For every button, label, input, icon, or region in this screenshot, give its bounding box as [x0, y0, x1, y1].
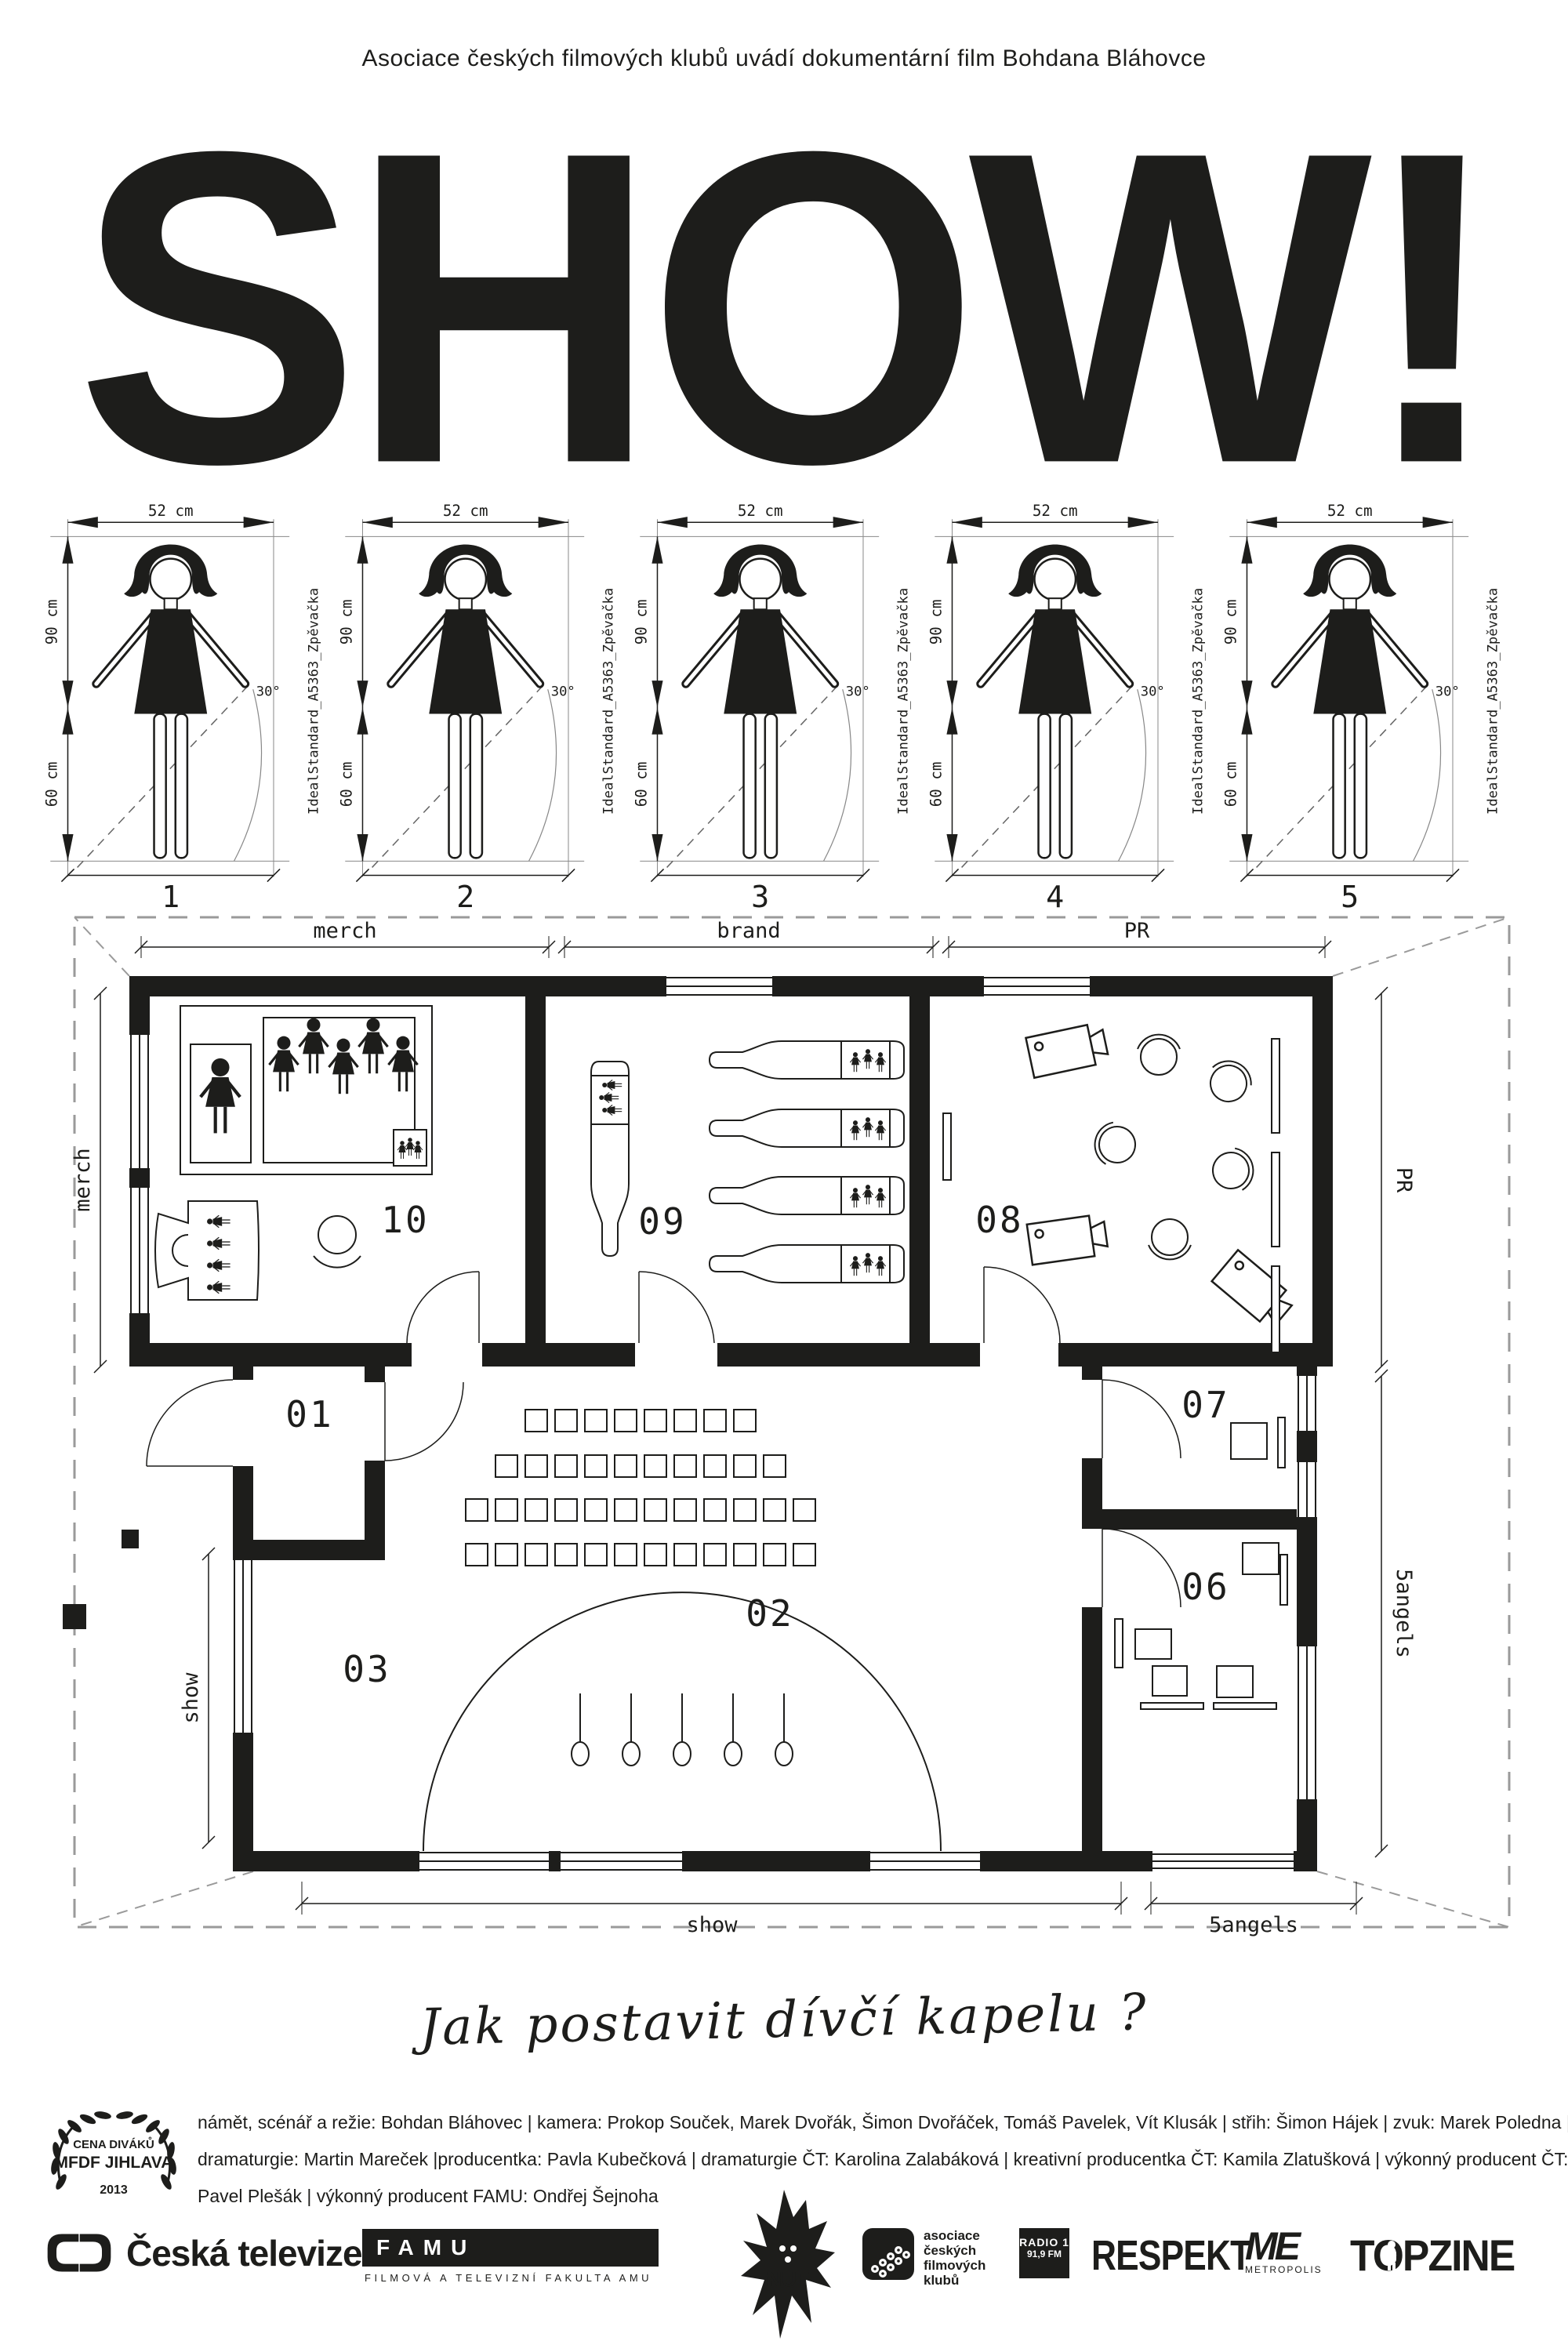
dim-top-merch: merch [313, 919, 376, 943]
svg-text:60 cm: 60 cm [930, 762, 945, 808]
outer-pillar [63, 1604, 86, 1629]
respekt-logo: RESPEKT [1091, 2231, 1250, 2280]
svg-text:IdealStandard_A5363_Zpěvačka: IdealStandard_A5363_Zpěvačka [601, 588, 617, 815]
svg-text:60 cm: 60 cm [340, 762, 355, 808]
floorplan: merch brand PR merch show PR 5angels sho… [55, 909, 1513, 1956]
topzine-person-icon [1381, 2239, 1403, 2276]
famu-logo: FAMU [362, 2229, 659, 2267]
credits-line-1: námět, scénář a režie: Bohdan Bláhovec |… [198, 2104, 1568, 2141]
dim-top-brand: brand [717, 919, 780, 943]
svg-text:30°: 30° [551, 684, 575, 699]
figure-diagram-row: 52 cm 90 cm 60 cm 30° IdealStandard_A536… [45, 503, 1523, 919]
ct-bracket-icon [43, 2230, 115, 2275]
svg-text:90 cm: 90 cm [930, 600, 945, 645]
width-dim-label: 52 cm [148, 503, 194, 520]
dim-bottom-show: show [686, 1913, 738, 1937]
outer-pillar [122, 1530, 139, 1548]
lower-dim-label: 60 cm [45, 762, 60, 808]
angle-label: 30° [256, 684, 281, 699]
topzine-logo: TOPZINE [1350, 2230, 1514, 2281]
award-line1: CENA DIVÁKŮ [73, 2136, 154, 2151]
dim-left-merch: merch [71, 1148, 95, 1211]
svg-text:52 cm: 52 cm [1327, 503, 1373, 520]
svg-text:30°: 30° [846, 684, 870, 699]
svg-text:90 cm: 90 cm [1225, 600, 1240, 645]
metropolis-label: METROPOLIS [1245, 2264, 1323, 2275]
hall-chairs [466, 1410, 815, 1566]
acfk-label: asociace českých filmových klubů [924, 2228, 985, 2288]
room-label-09: 09 [638, 1200, 686, 1243]
acfk-logo: asociace českých filmových klubů [862, 2228, 985, 2288]
credits-line-2: dramaturgie: Martin Mareček |producentka… [198, 2141, 1568, 2178]
poster-title: SHOW! [0, 86, 1568, 531]
metropolis-logo: ME METROPOLIS [1245, 2228, 1323, 2275]
famu-subtitle: FILMOVÁ A TELEVIZNÍ FAKULTA AMU [365, 2272, 652, 2284]
svg-text:90 cm: 90 cm [635, 600, 650, 645]
upper-dim-label: 90 cm [45, 600, 60, 645]
room-label-03: 03 [343, 1648, 390, 1690]
acfk-reel-icon [862, 2228, 914, 2280]
dim-top-pr: PR [1124, 919, 1150, 943]
room-08-pr [943, 1022, 1297, 1352]
tshirt [155, 1201, 259, 1300]
radio1-logo: RADIO 1 91,9 FM [1019, 2228, 1069, 2278]
room-label-06: 06 [1181, 1566, 1229, 1608]
room-label-07: 07 [1181, 1384, 1229, 1426]
svg-text:60 cm: 60 cm [1225, 762, 1240, 808]
award-line2: MFDF JIHLAVA [55, 2154, 173, 2172]
svg-text:IdealStandard_A5363_Zpěvačka: IdealStandard_A5363_Zpěvačka [896, 588, 912, 815]
svg-text:52 cm: 52 cm [738, 503, 783, 520]
ceska-televize-logo: Česká televize [43, 2230, 362, 2275]
nut-logo: NUT [737, 2186, 839, 2347]
metropolis-me: ME [1245, 2228, 1323, 2264]
figure-diagram-5: 52 cm 90 cm 60 cm 30° IdealStandard_A536… [1225, 503, 1519, 919]
svg-text:30°: 30° [1436, 684, 1460, 699]
svg-text:60 cm: 60 cm [635, 762, 650, 808]
figure-diagram-3: 52 cm 90 cm 60 cm 30° IdealStandard_A536… [635, 503, 930, 919]
room-09-brand [591, 1041, 904, 1283]
side-code-label: IdealStandard_A5363_Zpěvačka [307, 588, 322, 815]
dim-left-show: show [179, 1672, 203, 1724]
rooms-07-06 [1115, 1417, 1287, 1709]
room-label-01: 01 [285, 1393, 333, 1436]
figure-diagram-4: 52 cm 90 cm 60 cm 30° IdealStandard_A536… [930, 503, 1225, 919]
dim-bottom-5angels: 5angels [1209, 1913, 1298, 1937]
svg-text:52 cm: 52 cm [443, 503, 488, 520]
dim-right-pr: PR [1392, 1167, 1416, 1193]
stage [423, 1592, 941, 1851]
logo-row: Česká televize FAMU FILMOVÁ A TELEVIZNÍ … [0, 2180, 1568, 2352]
poster: Asociace českých filmových klubů uvádí d… [0, 0, 1568, 2352]
room-label-10: 10 [381, 1199, 429, 1241]
svg-text:52 cm: 52 cm [1033, 503, 1078, 520]
svg-text:30°: 30° [1141, 684, 1165, 699]
svg-text:90 cm: 90 cm [340, 600, 355, 645]
walls [63, 976, 1333, 1871]
room-label-08: 08 [975, 1199, 1023, 1241]
svg-text:IdealStandard_A5363_Zpěvačka: IdealStandard_A5363_Zpěvačka [1486, 588, 1501, 815]
nut-label: NUT [767, 2267, 809, 2291]
handwritten-question: Jak postavit dívčí kapelu ? [0, 1975, 1568, 2066]
room-label-02: 02 [746, 1592, 793, 1635]
svg-text:IdealStandard_A5363_Zpěvačka: IdealStandard_A5363_Zpěvačka [1191, 588, 1207, 815]
ceska-televize-label: Česká televize [126, 2232, 362, 2274]
figure-diagram-2: 52 cm 90 cm 60 cm 30° IdealStandard_A536… [340, 503, 635, 919]
figure-diagram-1: 52 cm 90 cm 60 cm 30° IdealStandard_A536… [45, 503, 340, 919]
room-10-merch [155, 1006, 432, 1300]
dim-right-5angels: 5angels [1392, 1569, 1416, 1658]
